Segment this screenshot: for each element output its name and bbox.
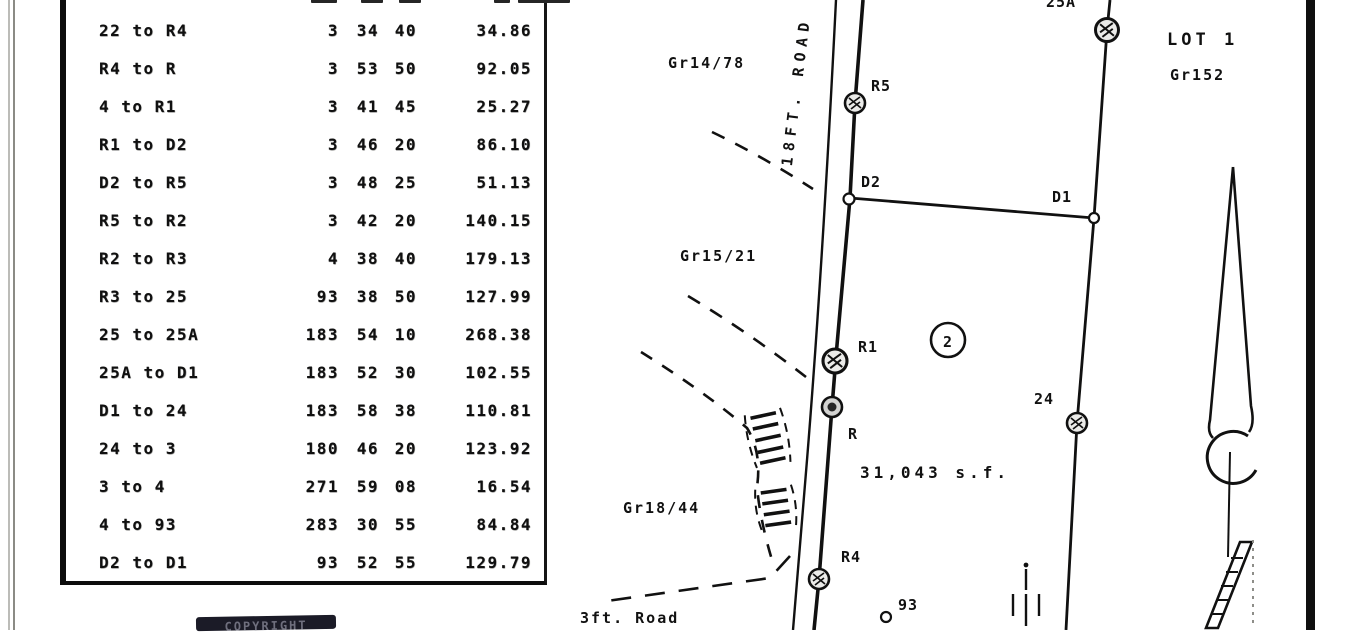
grant-ref-w: Gr15/21 bbox=[680, 247, 757, 265]
cell-dist: 110.81 bbox=[417, 392, 532, 430]
cell-dist: 179.13 bbox=[417, 240, 532, 278]
cell-dist: 25.27 bbox=[417, 88, 532, 126]
grant-ref-nw: Gr14/78 bbox=[668, 54, 745, 72]
cell-deg: 283 bbox=[271, 506, 339, 544]
table-row: R4 to R3535092.05 bbox=[66, 50, 544, 88]
cell-course: 3 to 4 bbox=[99, 468, 271, 506]
cell-dist: 268.38 bbox=[417, 316, 532, 354]
table-row: 3 to 4271590816.54 bbox=[66, 468, 544, 506]
cell-course: 22 to R4 bbox=[99, 12, 271, 50]
cell-sec: 40 bbox=[379, 12, 417, 50]
marker-24 bbox=[1067, 413, 1087, 433]
cell-dist: 140.15 bbox=[417, 202, 532, 240]
cell-sec: 38 bbox=[379, 392, 417, 430]
cell-dist: 129.79 bbox=[417, 544, 532, 582]
clipped-row-ink bbox=[494, 0, 510, 3]
old-road-dashes bbox=[607, 556, 790, 601]
table-row: 25 to 25A1835410268.38 bbox=[66, 316, 544, 354]
cell-course: D2 to D1 bbox=[99, 544, 271, 582]
clipped-row-ink bbox=[311, 0, 337, 3]
cell-min: 38 bbox=[339, 240, 379, 278]
table-row: 24 to 31804620123.92 bbox=[66, 430, 544, 468]
cell-dist: 51.13 bbox=[417, 164, 532, 202]
cell-deg: 93 bbox=[271, 544, 339, 582]
cell-dist: 16.54 bbox=[417, 468, 532, 506]
cell-deg: 4 bbox=[271, 240, 339, 278]
cell-sec: 55 bbox=[379, 506, 417, 544]
monument-symbol bbox=[1013, 563, 1039, 626]
east-lot-boundary bbox=[1066, 0, 1110, 630]
label-93: 93 bbox=[898, 596, 918, 614]
cell-sec: 40 bbox=[379, 240, 417, 278]
marker-d2 bbox=[844, 194, 855, 205]
cell-course: 24 to 3 bbox=[99, 430, 271, 468]
copyright-stamp: COPYRIGHT bbox=[196, 615, 336, 631]
cell-min: 30 bbox=[339, 506, 379, 544]
marker-93 bbox=[881, 612, 891, 622]
label-r1: R1 bbox=[858, 338, 878, 356]
cell-course: R2 to R3 bbox=[99, 240, 271, 278]
label-24: 24 bbox=[1034, 390, 1054, 408]
cell-course: 25A to D1 bbox=[99, 354, 271, 392]
parcel-number: 2 bbox=[943, 333, 953, 351]
cell-deg: 271 bbox=[271, 468, 339, 506]
table-row: 22 to R43344034.86 bbox=[66, 12, 544, 50]
cell-sec: 20 bbox=[379, 202, 417, 240]
cell-min: 58 bbox=[339, 392, 379, 430]
table-row: R5 to R234220140.15 bbox=[66, 202, 544, 240]
marker-r1 bbox=[823, 349, 847, 373]
clipped-row-ink bbox=[399, 0, 421, 3]
lot-name: LOT 1 bbox=[1167, 30, 1238, 50]
plat-svg: 2 18FT. ROAD Gr14/78 Gr15/21 Gr18/44 LOT… bbox=[560, 0, 1345, 630]
road-name-label: 18FT. ROAD bbox=[778, 16, 814, 167]
marker-d1 bbox=[1089, 213, 1099, 223]
cell-dist: 123.92 bbox=[417, 430, 532, 468]
cell-course: D1 to 24 bbox=[99, 392, 271, 430]
cell-deg: 183 bbox=[271, 354, 339, 392]
cell-deg: 183 bbox=[271, 392, 339, 430]
scanned-survey-plat: 22 to R43344034.86R4 to R3535092.054 to … bbox=[0, 0, 1345, 630]
marker-25a bbox=[1096, 19, 1119, 42]
cell-dist: 102.55 bbox=[417, 354, 532, 392]
cell-min: 52 bbox=[339, 354, 379, 392]
cell-dist: 92.05 bbox=[417, 50, 532, 88]
cell-min: 42 bbox=[339, 202, 379, 240]
cell-sec: 55 bbox=[379, 544, 417, 582]
cell-deg: 3 bbox=[271, 126, 339, 164]
cell-min: 46 bbox=[339, 430, 379, 468]
old-road-label: 3ft. Road bbox=[580, 609, 679, 627]
plat-drawing: 2 18FT. ROAD Gr14/78 Gr15/21 Gr18/44 LOT… bbox=[560, 0, 1345, 634]
cell-sec: 20 bbox=[379, 430, 417, 468]
cell-sec: 20 bbox=[379, 126, 417, 164]
cell-course: R4 to R bbox=[99, 50, 271, 88]
cell-min: 52 bbox=[339, 544, 379, 582]
cell-sec: 30 bbox=[379, 354, 417, 392]
cell-sec: 25 bbox=[379, 164, 417, 202]
cell-sec: 45 bbox=[379, 88, 417, 126]
cell-deg: 3 bbox=[271, 164, 339, 202]
lot-grant: Gr152 bbox=[1170, 66, 1225, 84]
marker-r bbox=[822, 397, 842, 417]
cell-deg: 3 bbox=[271, 50, 339, 88]
grant-ref-sw: Gr18/44 bbox=[623, 499, 700, 517]
cell-deg: 3 bbox=[271, 202, 339, 240]
cell-dist: 86.10 bbox=[417, 126, 532, 164]
cell-dist: 84.84 bbox=[417, 506, 532, 544]
cell-dist: 34.86 bbox=[417, 12, 532, 50]
page-edge-line bbox=[8, 0, 10, 630]
table-row: D2 to D1935255129.79 bbox=[66, 544, 544, 582]
cell-min: 34 bbox=[339, 12, 379, 50]
map-border-line bbox=[1306, 0, 1315, 630]
label-r4: R4 bbox=[841, 548, 861, 566]
dashed-path-a bbox=[688, 296, 806, 377]
cell-course: 25 to 25A bbox=[99, 316, 271, 354]
cell-deg: 93 bbox=[271, 278, 339, 316]
cell-sec: 50 bbox=[379, 278, 417, 316]
label-r: R bbox=[848, 425, 858, 443]
cell-course: R3 to 25 bbox=[99, 278, 271, 316]
table-row: 4 to 93283305584.84 bbox=[66, 506, 544, 544]
table-row: R2 to R343840179.13 bbox=[66, 240, 544, 278]
cell-dist: 127.99 bbox=[417, 278, 532, 316]
cell-min: 48 bbox=[339, 164, 379, 202]
cell-min: 59 bbox=[339, 468, 379, 506]
clipped-row-ink bbox=[361, 0, 383, 3]
cell-sec: 08 bbox=[379, 468, 417, 506]
cell-deg: 3 bbox=[271, 12, 339, 50]
cell-course: D2 to R5 bbox=[99, 164, 271, 202]
cell-course: 4 to 93 bbox=[99, 506, 271, 544]
table-row: 4 to R13414525.27 bbox=[66, 88, 544, 126]
table-row: R1 to D23462086.10 bbox=[66, 126, 544, 164]
table-row: D1 to 241835838110.81 bbox=[66, 392, 544, 430]
north-arrow bbox=[1206, 167, 1256, 628]
table-row: 25A to D11835230102.55 bbox=[66, 354, 544, 392]
label-r5: R5 bbox=[871, 77, 891, 95]
cell-course: 4 to R1 bbox=[99, 88, 271, 126]
cell-course: R1 to D2 bbox=[99, 126, 271, 164]
label-d2: D2 bbox=[861, 173, 881, 191]
marker-r4 bbox=[809, 569, 829, 589]
cell-min: 41 bbox=[339, 88, 379, 126]
cell-min: 53 bbox=[339, 50, 379, 88]
label-25a-clipped: 25A bbox=[1046, 0, 1076, 11]
marker-r5 bbox=[845, 93, 865, 113]
dashed-path-b bbox=[641, 352, 772, 560]
cell-min: 46 bbox=[339, 126, 379, 164]
cell-deg: 183 bbox=[271, 316, 339, 354]
table-row: D2 to R53482551.13 bbox=[66, 164, 544, 202]
lot-area: 31,043 s.f. bbox=[860, 463, 1010, 482]
traverse-table-rows: 22 to R43344034.86R4 to R3535092.054 to … bbox=[66, 12, 544, 582]
cell-sec: 10 bbox=[379, 316, 417, 354]
cell-deg: 3 bbox=[271, 88, 339, 126]
cell-min: 38 bbox=[339, 278, 379, 316]
cell-course: R5 to R2 bbox=[99, 202, 271, 240]
page-edge-line bbox=[13, 0, 15, 630]
table-row: R3 to 25933850127.99 bbox=[66, 278, 544, 316]
steps-symbol bbox=[753, 484, 798, 532]
label-d1: D1 bbox=[1052, 188, 1072, 206]
cell-deg: 180 bbox=[271, 430, 339, 468]
traverse-table: 22 to R43344034.86R4 to R3535092.054 to … bbox=[60, 0, 547, 585]
cell-sec: 50 bbox=[379, 50, 417, 88]
cell-min: 54 bbox=[339, 316, 379, 354]
steps-symbol bbox=[743, 407, 793, 469]
